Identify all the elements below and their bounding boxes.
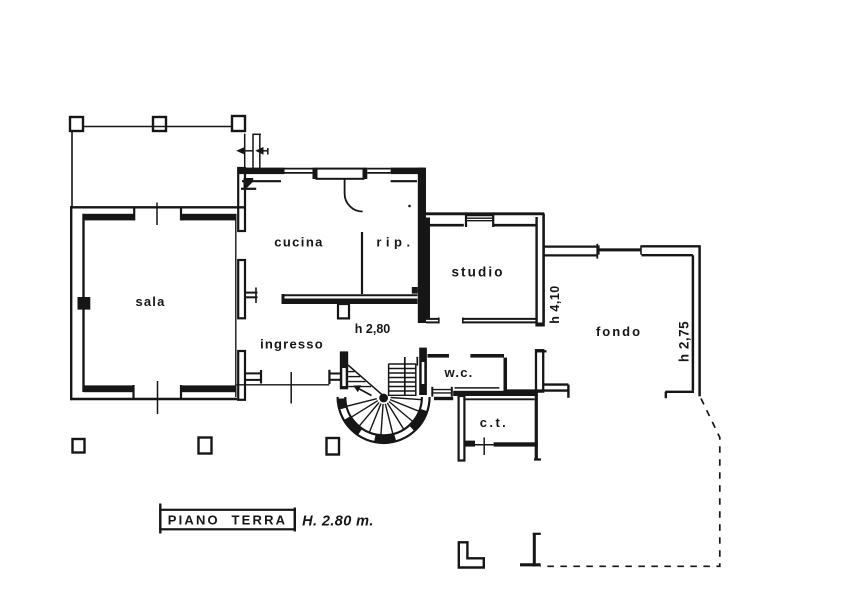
svg-text:h 2,80: h 2,80 <box>355 322 390 336</box>
svg-text:w.c.: w.c. <box>444 365 474 380</box>
svg-text:H. 2.80 m.: H. 2.80 m. <box>302 514 374 530</box>
svg-text:PIANO TERRA: PIANO TERRA <box>168 513 288 528</box>
svg-text:h 2,75: h 2,75 <box>677 321 692 362</box>
svg-text:studio: studio <box>451 265 504 280</box>
svg-text:fondo: fondo <box>596 324 642 339</box>
svg-text:c.t.: c.t. <box>480 415 508 430</box>
svg-text:cucina: cucina <box>274 235 324 250</box>
svg-text:sala: sala <box>135 294 165 309</box>
svg-text:ingresso: ingresso <box>260 337 324 352</box>
svg-text:h 4,10: h 4,10 <box>548 285 562 323</box>
svg-text:rip.: rip. <box>376 235 414 250</box>
